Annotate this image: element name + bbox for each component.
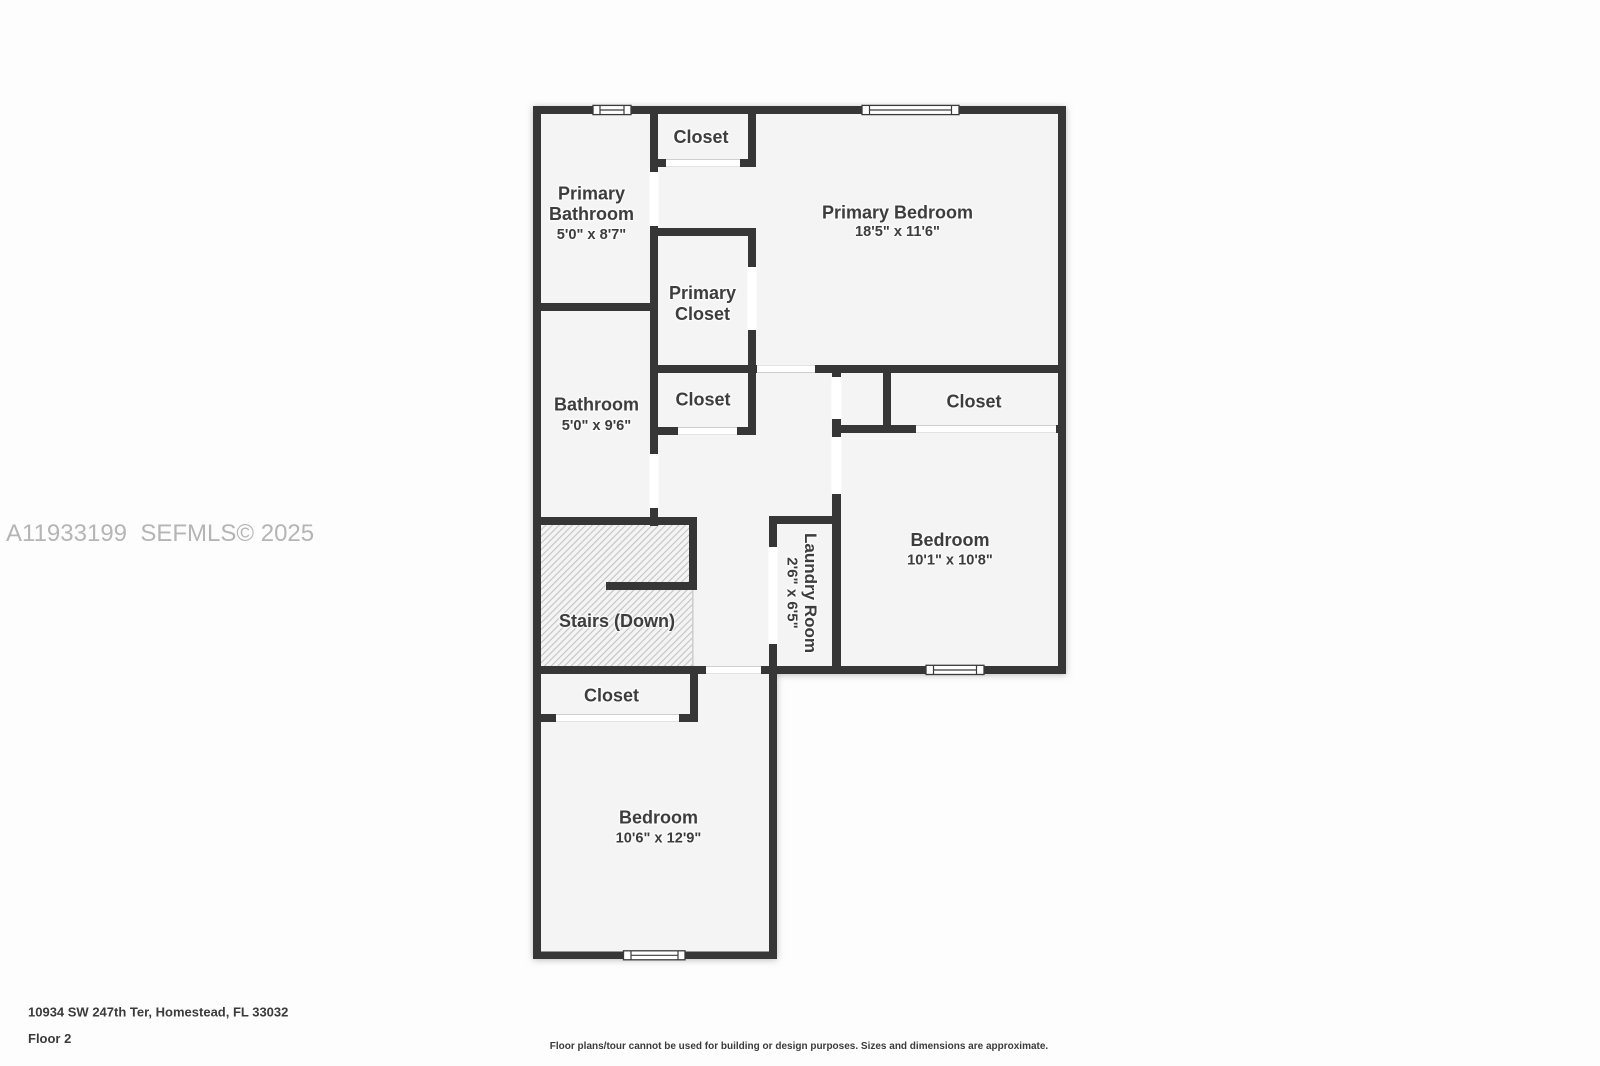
- svg-text:10934 SW 247th Ter, Homestead,: 10934 SW 247th Ter, Homestead, FL 33032: [28, 1005, 288, 1020]
- svg-text:Bedroom: Bedroom: [619, 807, 698, 827]
- svg-text:18'5" x 11'6": 18'5" x 11'6": [855, 224, 940, 240]
- svg-text:5'0" x 9'6": 5'0" x 9'6": [562, 418, 631, 434]
- svg-text:Primary Bedroom: Primary Bedroom: [822, 202, 973, 222]
- svg-text:Floor 2: Floor 2: [28, 1031, 71, 1046]
- svg-text:Closet: Closet: [675, 389, 730, 409]
- svg-text:Bathroom: Bathroom: [549, 204, 634, 224]
- svg-text:Closet: Closet: [946, 391, 1001, 411]
- svg-text:Closet: Closet: [673, 127, 728, 147]
- svg-text:Floor plans/tour cannot be use: Floor plans/tour cannot be used for buil…: [550, 1041, 1049, 1052]
- svg-text:Laundry Room: Laundry Room: [801, 533, 820, 653]
- svg-text:Closet: Closet: [675, 304, 730, 324]
- svg-text:10'6" x 12'9": 10'6" x 12'9": [616, 830, 702, 846]
- svg-text:5'0" x 8'7": 5'0" x 8'7": [557, 227, 626, 243]
- svg-text:Stairs (Down): Stairs (Down): [559, 611, 675, 631]
- svg-text:Bedroom: Bedroom: [910, 530, 989, 550]
- svg-text:10'1" x 10'8": 10'1" x 10'8": [907, 552, 993, 568]
- svg-text:2'6" x 6'5": 2'6" x 6'5": [784, 557, 801, 628]
- svg-text:Closet: Closet: [584, 685, 639, 705]
- svg-text:Primary: Primary: [558, 183, 625, 203]
- svg-text:Primary: Primary: [669, 283, 736, 303]
- svg-text:A11933199 SEFMLS© 2025: A11933199 SEFMLS© 2025: [6, 520, 314, 547]
- svg-text:Bathroom: Bathroom: [554, 394, 639, 414]
